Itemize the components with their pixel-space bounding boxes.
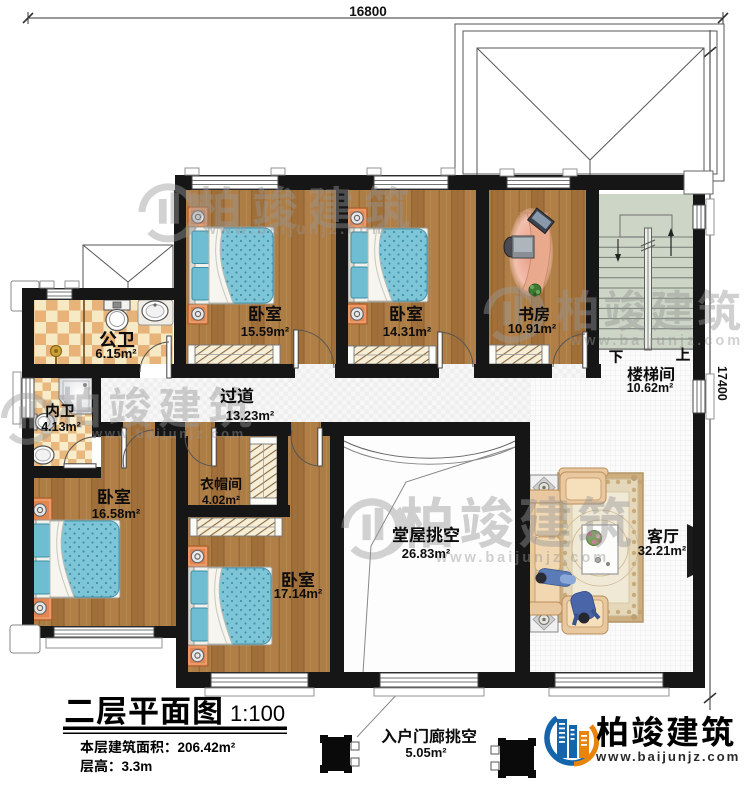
svg-text:：206.42m²: ：206.42m² <box>164 740 236 755</box>
svg-text:26.83m²: 26.83m² <box>402 546 451 561</box>
svg-text:17.14m²: 17.14m² <box>274 586 323 601</box>
svg-text:www.baijunjz.com: www.baijunjz.com <box>595 749 740 764</box>
svg-text:www.baijunjz.com: www.baijunjz.com <box>569 333 743 349</box>
svg-text:13.23m²: 13.23m² <box>226 408 275 423</box>
svg-text:14.31m²: 14.31m² <box>383 324 432 339</box>
svg-text:4.02m²: 4.02m² <box>202 493 240 507</box>
svg-text:4.13m²: 4.13m² <box>41 420 81 434</box>
svg-text:www.baijunjz.com: www.baijunjz.com <box>435 550 609 566</box>
svg-text:10.91m²: 10.91m² <box>508 321 557 336</box>
svg-text:16800: 16800 <box>349 4 387 19</box>
svg-text:10.62m²: 10.62m² <box>627 381 674 395</box>
svg-text:17400: 17400 <box>715 366 729 401</box>
svg-text:www.baijunjz.com: www.baijunjz.com <box>203 221 389 238</box>
svg-text:16.58m²: 16.58m² <box>92 506 141 521</box>
svg-text:5.05m²: 5.05m² <box>405 745 447 760</box>
svg-text:15.59m²: 15.59m² <box>241 324 290 339</box>
svg-text:6.15m²: 6.15m² <box>95 346 137 361</box>
svg-text:www.baijunjz.com: www.baijunjz.com <box>91 426 246 441</box>
svg-text:：3.3m: ：3.3m <box>108 759 152 774</box>
svg-text:1:100: 1:100 <box>230 701 285 726</box>
svg-text:32.21m²: 32.21m² <box>638 543 687 558</box>
